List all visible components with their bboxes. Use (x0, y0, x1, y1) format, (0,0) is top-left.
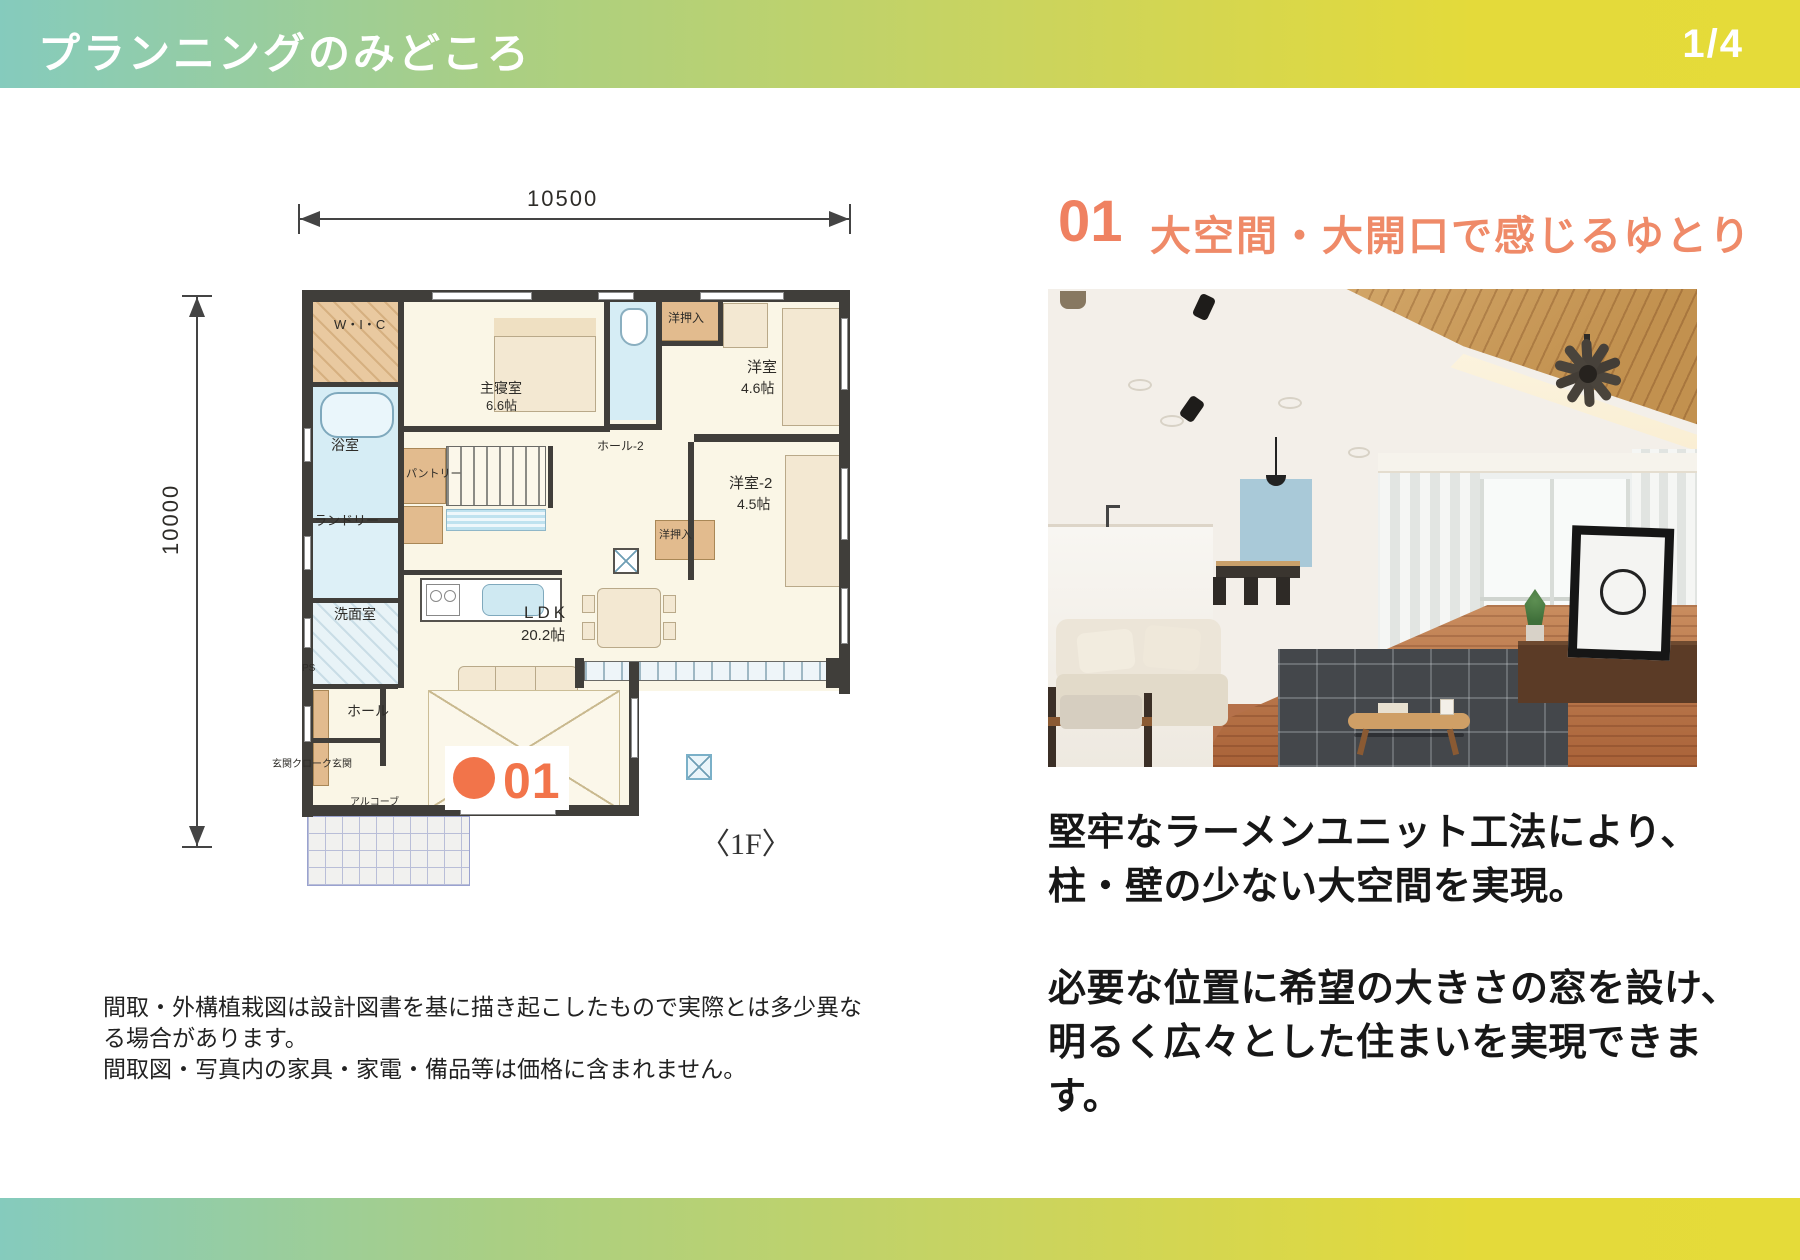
entrance-porch (307, 816, 470, 886)
fridge (401, 506, 443, 544)
bed-bedroom1 (782, 308, 840, 426)
toilet (620, 308, 648, 346)
page-number: 1/4 (1682, 22, 1744, 67)
room-label: ホール (347, 704, 389, 718)
stair-void (446, 509, 546, 531)
marker-number: 01 (503, 752, 561, 810)
room-label: 6.6帖 (486, 399, 517, 412)
dining-table (597, 588, 661, 648)
room-label: ランドリー (314, 514, 379, 527)
arrow-left-icon (300, 211, 320, 227)
pendant-lamp-icon (1275, 437, 1277, 477)
pillar-marker (613, 548, 639, 574)
disclaimer: 間取・外構植栽図は設計図書を基に描き起こしたもので実際とは多少異なる場合がありま… (103, 992, 875, 1085)
room-label: アルコーブ (350, 798, 399, 808)
dimension-height-line (196, 295, 198, 848)
faucet-icon (1106, 507, 1109, 527)
room-laundry (313, 522, 398, 599)
slide: { "header": { "title": "プランニングのみどころ", "p… (0, 0, 1800, 1260)
desk-bedroom1 (723, 303, 768, 348)
exterior-marker (686, 754, 712, 780)
room-label: 玄関クローク玄関 (272, 760, 352, 770)
floorplan: 10500 10000 (0, 0, 900, 960)
room-label: 洗面室 (334, 607, 376, 621)
room-label: 洋押入 (659, 530, 692, 541)
living-room-photo (1048, 289, 1697, 767)
marker-dot-icon (453, 757, 495, 799)
accent-wall (1240, 479, 1312, 567)
room-label: W・I・C (334, 318, 385, 331)
room-label: 洋押入 (668, 312, 704, 324)
room-label: 4.6帖 (741, 381, 774, 395)
room-wic (313, 300, 398, 384)
disclaimer-line-2: 間取図・写真内の家具・家電・備品等は価格に含まれません。 (103, 1054, 875, 1085)
dimension-width-label: 10500 (527, 188, 598, 210)
armchair (1048, 687, 1156, 767)
dimension-height-label: 10000 (160, 484, 182, 555)
room-label: 洋室 (747, 360, 777, 375)
disclaimer-line-1: 間取・外構植栽図は設計図書を基に描き起こしたもので実際とは多少異なる場合がありま… (103, 992, 875, 1054)
bathtub (320, 392, 394, 438)
dimension-width-line (298, 218, 851, 220)
coffee-table (1348, 713, 1470, 729)
room-label: 浴室 (331, 438, 359, 452)
room-label: 20.2帖 (521, 628, 565, 643)
bed-bedroom2 (785, 455, 843, 587)
body-paragraph-2: 必要な位置に希望の大きさの窓を設け、明るく広々とした住まいを実現できます。 (1048, 962, 1748, 1124)
arrow-right-icon (829, 211, 849, 227)
room-label: 洋室-2 (729, 476, 772, 491)
plan-marker-01: 01 (445, 746, 569, 810)
floor-label: 〈1F〉 (700, 830, 792, 860)
room-label: パントリー (406, 469, 462, 480)
body-paragraph-1: 堅牢なラーメンユニット工法により、 柱・壁の少ない大空間を実現。 (1048, 806, 1748, 914)
room-label: 主寝室 (480, 381, 522, 395)
bay-window (584, 661, 834, 681)
section-title: 大空間・大開口で感じるゆとり (1150, 202, 1752, 262)
body-line: 柱・壁の少ない大空間を実現。 (1048, 860, 1748, 914)
section-number: 01 (1058, 188, 1123, 255)
room-label: ホール-2 (597, 440, 644, 452)
footer-bar (0, 1198, 1800, 1260)
room-label: PS (302, 664, 315, 674)
spotlight-icon (1192, 293, 1217, 322)
room-label: LDK (524, 604, 569, 621)
room-label: 4.5帖 (737, 497, 770, 511)
body-line: 堅牢なラーメンユニット工法により、 (1048, 806, 1748, 860)
